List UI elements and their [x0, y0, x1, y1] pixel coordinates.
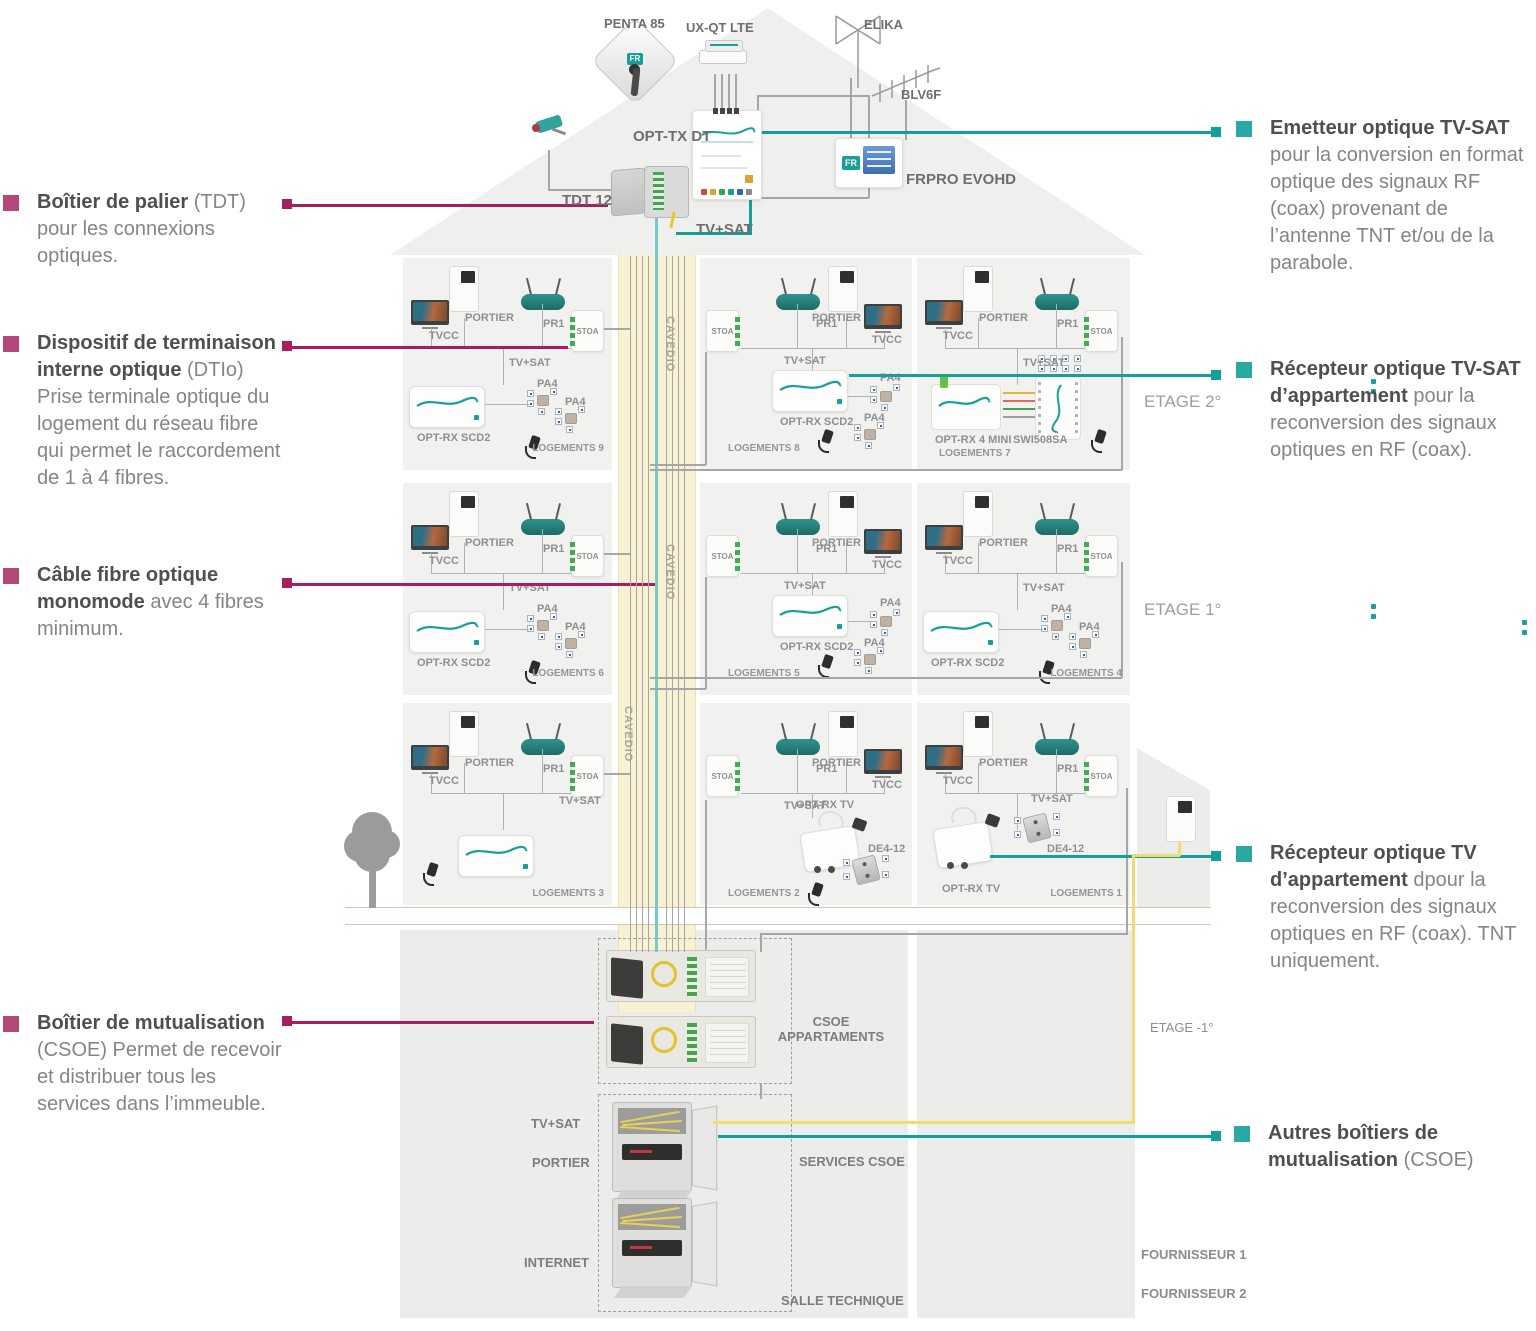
pa4-label: PA4 [537, 603, 558, 615]
de4-12-tap-icon [846, 853, 886, 889]
router-icon [521, 294, 565, 310]
apartment-logements-6: STOATVCCPORTIERPR1TV+SATOPT-RX SCD2PA4PA… [403, 483, 612, 695]
legend-square-icon [3, 568, 19, 584]
opt-tx-dt-device [692, 110, 762, 200]
elika-label: ELIKA [864, 17, 903, 32]
connection-wire [1121, 337, 1123, 470]
annotation-autres-boitiers: Autres boîtiers de mutualisation (CSOE) [1268, 1120, 1530, 1174]
router-icon [776, 294, 820, 310]
connection-wire [1178, 840, 1181, 856]
pa4-label: PA4 [565, 621, 586, 633]
connection-wire [760, 1083, 762, 1099]
swi-label: SWI508SA [1013, 434, 1067, 446]
intercom-icon [449, 266, 479, 312]
opt-rx-scd2-icon [772, 595, 848, 637]
power-plug-icon [818, 430, 834, 452]
services-csoe-label: SERVICES CSOE [799, 1154, 905, 1169]
wire [503, 349, 504, 385]
stoa-box-icon: STOA [571, 310, 604, 352]
intercom-icon [963, 711, 993, 757]
pa4-splitter-icon [872, 384, 898, 408]
intercom-icon [963, 491, 993, 537]
tdt-12-junction-box [611, 166, 691, 218]
portier-label: PORTIER [979, 537, 1028, 549]
tvsat-label: TV+SAT [784, 355, 826, 367]
blv6f-antenna-icon [870, 56, 942, 111]
basement-tvsat-label: TV+SAT [531, 1116, 580, 1131]
pa4-label: PA4 [880, 597, 901, 609]
pr1-label: PR1 [816, 543, 837, 555]
frpro-evohd-device: FR [835, 138, 903, 188]
connection-wire [705, 800, 707, 950]
tdt12-label: TDT 12 [562, 192, 612, 209]
fiber-wire [1003, 400, 1035, 402]
de412-label: DE4-12 [1047, 843, 1084, 855]
connection-wire [1121, 562, 1123, 678]
pr1-label: PR1 [543, 318, 564, 330]
stoa-box-icon: STOA [1085, 310, 1118, 352]
stoa-box-icon: STOA [706, 310, 739, 352]
tvcc-label: TVCC [943, 775, 973, 787]
csoe-box-icon [606, 1016, 756, 1068]
connection-wire [684, 256, 685, 952]
tv-icon [411, 525, 449, 550]
etage2-label: ETAGE 2° [1144, 392, 1221, 412]
wire [848, 621, 872, 622]
legend-square-icon [1236, 362, 1252, 378]
tvcc-label: TVCC [429, 330, 459, 342]
logements-label: LOGEMENTS 7 [939, 448, 1011, 459]
legend-square-icon [3, 1016, 19, 1032]
wire [999, 629, 1043, 630]
portier-label: PORTIER [465, 537, 514, 549]
tvsat-label: TV+SAT [1023, 582, 1065, 594]
annotation-recepteur-tv: Récepteur optique TV d’appartement dpour… [1270, 840, 1532, 975]
wire [503, 574, 504, 610]
satellite-dish-icon: FR [593, 30, 681, 108]
stoa-box-icon: STOA [1085, 535, 1118, 577]
annotation-text: Boîtier de mutualisation (CSOE) Permet d… [37, 1010, 289, 1118]
pa4-label: PA4 [1079, 621, 1100, 633]
cavedio-label: CAVEDIO [622, 706, 634, 762]
pa4-label: PA4 [565, 396, 586, 408]
wire [797, 529, 798, 573]
csoe-label-line1: CSOE [771, 1014, 891, 1029]
fournisseur2-label: FOURNISSEUR 2 [1141, 1286, 1246, 1301]
connection-wire [1126, 788, 1128, 935]
line-end-square-icon [1211, 851, 1221, 861]
logements-label: LOGEMENTS 2 [728, 888, 800, 899]
connection-wire [650, 677, 1122, 679]
router-icon [1035, 739, 1079, 755]
wire [797, 304, 798, 348]
opt-rx-scd2-icon [923, 611, 999, 653]
wire [797, 749, 798, 793]
csoe-box-icon [606, 950, 756, 1002]
stoa-box-icon: STOA [706, 755, 739, 797]
intercom-icon [449, 491, 479, 537]
cavedio-label: CAVEDIO [664, 544, 676, 600]
connection-wire [762, 131, 1213, 134]
stoa-box-icon: STOA [571, 755, 604, 797]
lnb-icon [699, 40, 749, 72]
tvcc-label: TVCC [872, 559, 902, 571]
coax-port-icon [1074, 355, 1081, 362]
cavedio-label: CAVEDIO [664, 316, 676, 372]
wire [741, 348, 885, 349]
csoe-label-line2: APPARTAMENTS [771, 1029, 891, 1044]
router-icon [776, 739, 820, 755]
annotation-boitier-mutualisation: Boîtier de mutualisation (CSOE) Permet d… [37, 1010, 289, 1118]
connection-wire [636, 256, 637, 952]
wire [1017, 574, 1018, 610]
wire [503, 794, 504, 830]
uxqt-lte-label: UX-QT LTE [686, 20, 754, 35]
logements-label: LOGEMENTS 9 [532, 443, 604, 454]
portier-label: PORTIER [465, 757, 514, 769]
connection-wire [762, 197, 869, 199]
tv-icon [411, 300, 449, 325]
tv-icon [925, 745, 963, 770]
annex-intercom-icon [1166, 796, 1196, 842]
annotation-text: Emetteur optique TV-SAT pour la conversi… [1270, 115, 1528, 277]
device-label: OPT-RX 4 MINI [935, 434, 1011, 446]
wire [431, 573, 571, 574]
wire [741, 573, 885, 574]
apartment-logements-2: STOATVCCPORTIERPR1TV+SATOPT-RX TVDE4-12L… [700, 703, 912, 905]
pa4-splitter-icon [856, 422, 882, 446]
device-label: OPT-RX SCD2 [417, 432, 490, 444]
tvsat-label: TV+SAT [509, 357, 551, 369]
cctv-camera-icon [528, 112, 572, 158]
pa4-splitter-icon [1071, 631, 1097, 655]
annotation-recepteur-tvsat: Récepteur optique TV-SAT d’appartement p… [1270, 356, 1532, 464]
fiber-wire [1003, 416, 1035, 418]
wire [741, 793, 885, 794]
router-icon [521, 739, 565, 755]
connection-wire [728, 74, 730, 111]
connection-wire [757, 95, 869, 97]
tv-icon [864, 304, 902, 329]
pr1-label: PR1 [543, 543, 564, 555]
fournisseur1-label: FOURNISSEUR 1 [1141, 1247, 1246, 1262]
legend-square-icon [3, 195, 19, 211]
connection-wire [1132, 855, 1135, 1123]
connection-wire [757, 95, 759, 111]
opt-tx-dt-label: OPT-TX DT [633, 128, 711, 145]
pa4-splitter-icon [856, 647, 882, 671]
basement-panel-right [917, 930, 1135, 1318]
pa4-splitter-icon [872, 609, 898, 633]
connection-wire [648, 256, 649, 952]
tv-icon [925, 300, 963, 325]
tvcc-label: TVCC [943, 330, 973, 342]
device-label: OPT-RX TV [796, 799, 854, 811]
roof-tvsat-label: TV+SAT [696, 221, 753, 238]
wire [848, 396, 872, 397]
opt-rx-scd2-icon [772, 370, 848, 412]
pr1-label: PR1 [1057, 318, 1078, 330]
connection-wire [990, 855, 1215, 858]
wire [945, 348, 1085, 349]
power-plug-icon [808, 883, 824, 905]
apartment-logements-4: STOATVCCPORTIERPR1TV+SATOPT-RX SCD2PA4PA… [917, 483, 1130, 695]
apartment-logements-7: STOATVCCPORTIERPR1TV+SATOPT-RX 4 MINISWI… [917, 258, 1130, 470]
coax-port-icon [1074, 365, 1081, 372]
connection-wire [288, 1021, 594, 1024]
device-label: OPT-RX TV [942, 883, 1000, 895]
connection-wire [705, 352, 707, 465]
connection-wire [714, 74, 716, 111]
apartment-logements-1: STOATVCCPORTIERPR1TV+SATOPT-RX TVDE4-12L… [917, 703, 1130, 905]
logements-label: LOGEMENTS 6 [532, 668, 604, 679]
connection-wire [604, 773, 630, 775]
stoa-box-icon: STOA [706, 535, 739, 577]
logements-label: LOGEMENTS 3 [532, 888, 604, 899]
stoa-box-icon: STOA [571, 535, 604, 577]
csoe-apartments-label: CSOE APPARTAMENTS [771, 1014, 891, 1044]
connection-wire [735, 74, 737, 111]
connection-wire [1132, 854, 1180, 857]
router-icon [1035, 519, 1079, 535]
legend-square-icon [1236, 846, 1252, 862]
salle-technique-label: SALLE TECHNIQUE [781, 1293, 904, 1308]
annotation-emetteur-optique: Emetteur optique TV-SAT pour la conversi… [1270, 115, 1528, 277]
tvcc-label: TVCC [943, 555, 973, 567]
connection-wire [721, 74, 723, 111]
etage1-label: ETAGE 1° [1144, 600, 1221, 620]
pa4-splitter-icon [529, 613, 555, 637]
intercom-icon [828, 711, 858, 757]
pa4-splitter-icon [529, 388, 555, 412]
power-plug-icon [818, 655, 834, 677]
connection-wire [760, 933, 1127, 935]
tv-icon [411, 745, 449, 770]
portier-label: PORTIER [979, 312, 1028, 324]
pa4-label: PA4 [1051, 603, 1072, 615]
tvsat-label: TV+SAT [784, 580, 826, 592]
line-end-square-icon [1211, 370, 1221, 380]
pr1-label: PR1 [543, 763, 564, 775]
tvcc-label: TVCC [429, 555, 459, 567]
wire [945, 573, 1085, 574]
connection-wire [630, 256, 631, 952]
pr1-label: PR1 [1057, 543, 1078, 555]
etage-minus1-label: ETAGE -1° [1150, 1020, 1213, 1035]
tvsat-label: TV+SAT [559, 795, 601, 807]
fiber-building-diagram: STOATVCCPORTIERPR1TV+SATOPT-RX SCD2PA4PA… [0, 0, 1536, 1331]
apartment-logements-5: STOATVCCPORTIERPR1TV+SATOPT-RX SCD2PA4PA… [700, 483, 912, 695]
wire [485, 404, 529, 405]
connection-wire [678, 256, 679, 952]
annex-roof [1137, 748, 1210, 790]
connection-wire [713, 1121, 1135, 1124]
device-label: OPT-RX SCD2 [780, 416, 853, 428]
wire [1017, 349, 1018, 385]
line-end-square-icon [1211, 1131, 1221, 1141]
tvcc-label: TVCC [872, 334, 902, 346]
annotation-dtio: Dispositif de terminaison interne optiqu… [37, 330, 289, 492]
pr1-label: PR1 [816, 763, 837, 775]
connection-wire [849, 374, 1215, 377]
penta85-label: PENTA 85 [604, 16, 665, 31]
pa4-splitter-icon [557, 631, 583, 655]
connection-wire [288, 346, 568, 349]
annotation-text: Récepteur optique TV-SAT d’appartement p… [1270, 356, 1532, 464]
intercom-icon [828, 491, 858, 537]
basement-internet-label: INTERNET [524, 1255, 589, 1270]
connection-wire [705, 577, 707, 689]
device-label: OPT-RX SCD2 [931, 657, 1004, 669]
intercom-icon [963, 266, 993, 312]
ground-line [345, 907, 1211, 925]
connection-wire [655, 214, 658, 952]
annotation-text: Autres boîtiers de mutualisation (CSOE) [1268, 1120, 1530, 1174]
technical-cabinet-icon [612, 1102, 720, 1194]
pa4-label: PA4 [864, 637, 885, 649]
tv-icon [864, 529, 902, 554]
fiber-wire [1003, 408, 1035, 410]
annotation-text: Dispositif de terminaison interne optiqu… [37, 330, 289, 492]
legend-square-icon [1234, 1126, 1250, 1142]
connection-wire [642, 256, 643, 952]
connection-wire [604, 328, 630, 330]
annotation-text: Boîtier de palier (TDT) pour les connexi… [37, 189, 289, 270]
brand-badge: FR [842, 156, 860, 170]
intercom-icon [828, 266, 858, 312]
annotation-cable-fibre: Câble fibre optique monomode avec 4 fibr… [37, 562, 289, 643]
annotation-text: Câble fibre optique monomode avec 4 fibr… [37, 562, 289, 643]
connection-wire [760, 933, 762, 952]
connection-wire [288, 204, 608, 207]
apartment-logements-9: STOATVCCPORTIERPR1TV+SATOPT-RX SCD2PA4PA… [403, 258, 612, 470]
basement-portier-label: PORTIER [532, 1155, 590, 1170]
tvsat-label: TV+SAT [1023, 357, 1065, 369]
connection-wire [548, 189, 612, 191]
router-icon [521, 519, 565, 535]
pa4-splitter-icon [1043, 613, 1069, 637]
opt-rx-tv-icon [933, 811, 997, 869]
tv-icon [925, 525, 963, 550]
logements-label: LOGEMENTS 1 [1050, 888, 1122, 899]
connection-wire [650, 469, 1122, 471]
opt-rx-scd2-icon [409, 386, 485, 428]
connection-wire [288, 583, 655, 586]
technical-cabinet-icon [612, 1198, 720, 1290]
pa4-label: PA4 [537, 378, 558, 390]
tvsat-label: TV+SAT [1031, 793, 1073, 805]
swi508sa-multiswitch-icon [1035, 376, 1081, 440]
opt-rx-scd2-icon [458, 835, 534, 877]
tvcc-label: TVCC [872, 779, 902, 791]
router-icon [1035, 294, 1079, 310]
pr1-label: PR1 [816, 318, 837, 330]
de412-label: DE4-12 [868, 843, 905, 855]
annotation-text: Récepteur optique TV d’appartement dpour… [1270, 840, 1532, 975]
connection-wire [604, 553, 630, 555]
fiber-wire [1003, 392, 1035, 394]
power-plug-icon [1091, 430, 1107, 452]
connection-wire [718, 1135, 1215, 1138]
de4-12-tap-icon [1017, 811, 1057, 847]
power-plug-icon [423, 863, 439, 885]
frpro-evohd-label: FRPRO EVOHD [906, 171, 1016, 188]
pr1-label: PR1 [1057, 763, 1078, 775]
pa4-label: PA4 [864, 412, 885, 424]
legend-square-icon [3, 336, 19, 352]
opt-rx-scd2-icon [409, 611, 485, 653]
wire [485, 629, 529, 630]
pa4-splitter-icon [557, 406, 583, 430]
tv-icon [864, 749, 902, 774]
intercom-icon [449, 711, 479, 757]
line-end-square-icon [1211, 127, 1221, 137]
legend-square-icon [1236, 121, 1252, 137]
tvcc-label: TVCC [429, 775, 459, 787]
logements-label: LOGEMENTS 8 [728, 443, 800, 454]
apartment-logements-3: STOATVCCPORTIERPR1TV+SATLOGEMENTS 3 [403, 703, 612, 905]
blv6f-label: BLV6F [901, 87, 941, 102]
portier-label: PORTIER [979, 757, 1028, 769]
apartment-logements-8: STOATVCCPORTIERPR1TV+SATOPT-RX SCD2PA4PA… [700, 258, 912, 470]
router-icon [776, 519, 820, 535]
portier-label: PORTIER [465, 312, 514, 324]
stoa-box-icon: STOA [1085, 755, 1118, 797]
wire [431, 793, 571, 794]
device-label: OPT-RX SCD2 [780, 641, 853, 653]
annotation-boitier-palier: Boîtier de palier (TDT) pour les connexi… [37, 189, 289, 270]
opt-rx-4-mini-icon [931, 384, 1001, 430]
device-label: OPT-RX SCD2 [417, 657, 490, 669]
